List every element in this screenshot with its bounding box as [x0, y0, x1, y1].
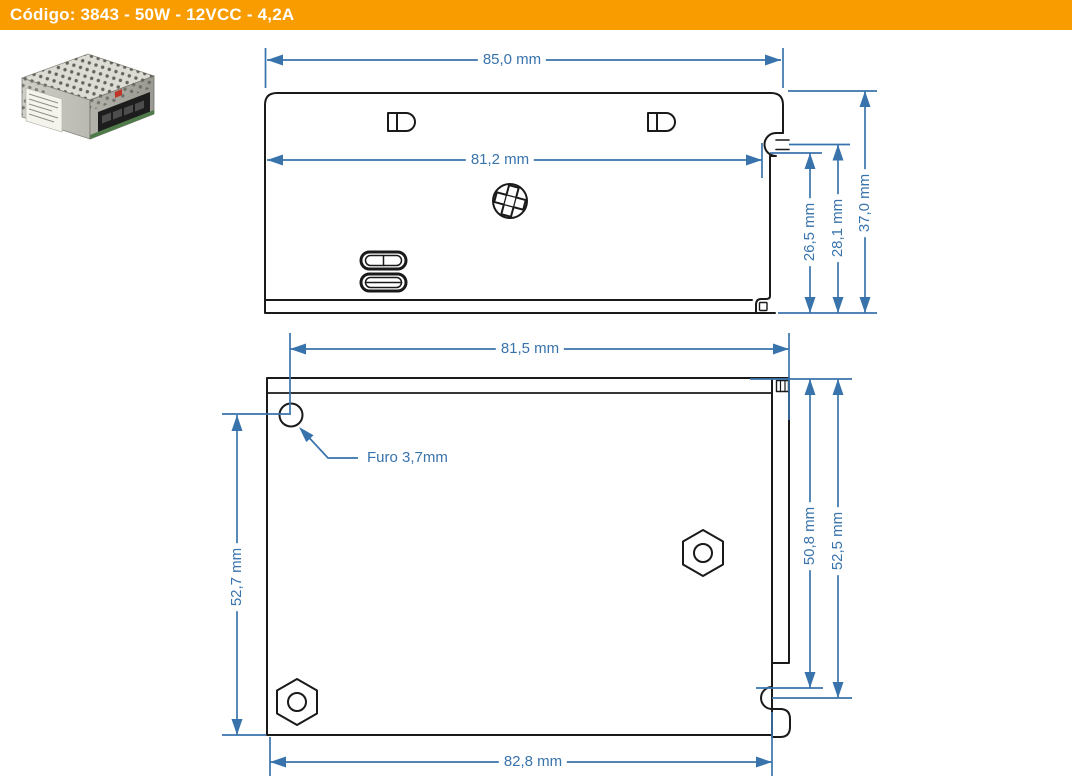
- page: Código: 3843 - 50W - 12VCC - 4,2A: [0, 0, 1072, 780]
- hex-standoff-upper: [683, 530, 723, 576]
- hole-callout-label: Furo 3,7mm: [362, 449, 453, 467]
- technical-drawing: [0, 0, 1072, 780]
- dim-width-bottom-label: 82,8 mm: [499, 753, 567, 771]
- top-view-linework: [267, 378, 790, 737]
- dim-height-keyslot-label: 26,5 mm: [801, 198, 819, 266]
- louver-knockouts: [361, 252, 406, 291]
- dim-height-left-label: 52,7 mm: [228, 543, 246, 611]
- screw-head-icon: [492, 183, 529, 220]
- dim-height-overall-label: 37,0 mm: [856, 169, 874, 237]
- side-view-linework: [265, 93, 789, 313]
- dim-width-top-label: 81,5 mm: [496, 340, 564, 358]
- dimension-arrowheads: [232, 55, 871, 768]
- mounting-hole: [280, 404, 303, 427]
- dim-width-keyslot-label: 81,2 mm: [466, 151, 534, 169]
- dim-height-step-label: 28,1 mm: [829, 194, 847, 262]
- hex-standoff-lower: [277, 679, 317, 725]
- dim-height-inner-label: 50,8 mm: [801, 502, 819, 570]
- dim-height-right-label: 52,5 mm: [829, 507, 847, 575]
- dim-width-overall-label: 85,0 mm: [478, 51, 546, 69]
- dimension-lines: [222, 48, 877, 776]
